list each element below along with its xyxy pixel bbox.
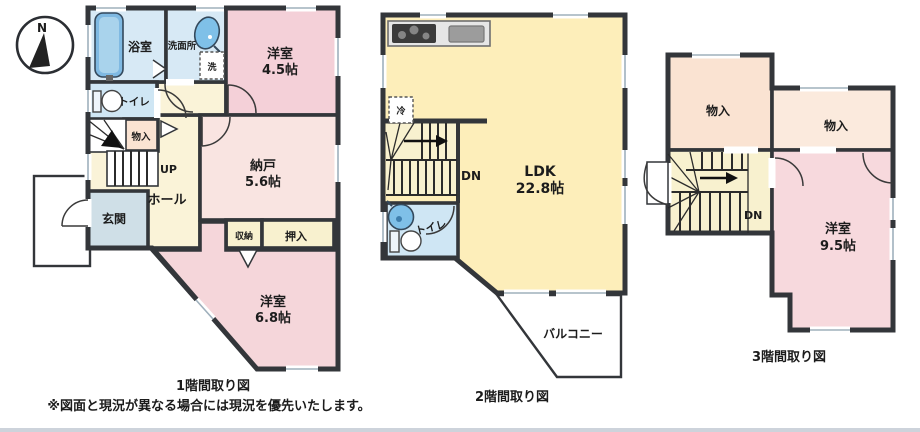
- room-washroom-label: 洗面所: [168, 40, 197, 52]
- stairs-down-3f-label: DN: [744, 209, 762, 222]
- room-storage-3f-a-label: 物入: [706, 103, 730, 118]
- room-storage-3f-b-label: 物入: [824, 118, 848, 133]
- kitchen-counter: [388, 21, 490, 46]
- room-storage-3f-a: [668, 55, 772, 150]
- floor2-caption: 2階間取り図: [475, 389, 549, 405]
- room-storeroom-size: 5.6帖: [245, 174, 281, 190]
- room-western-a-size: 4.5帖: [262, 62, 298, 78]
- bottom-edge-strip: [0, 428, 920, 432]
- floor2-plan: LDK 22.8帖 冷 DN トイレ バルコニー: [380, 12, 629, 378]
- floor3-caption: 3階間取り図: [752, 349, 826, 365]
- stairs-down-2f-label: DN: [461, 169, 481, 183]
- compass-icon: N: [17, 17, 73, 73]
- room-hall-label: ホール: [147, 193, 186, 208]
- floor-plan-canvas: N: [0, 0, 920, 432]
- toilet-icon-2f: [390, 231, 399, 252]
- room-western-3f-label: 洋室: [825, 221, 851, 237]
- room-balcony-label: バルコニー: [543, 327, 603, 341]
- room-ldk-label: LDK: [524, 164, 557, 180]
- room-storeroom-label: 納戸: [250, 158, 276, 174]
- room-western-3f-size: 9.5帖: [820, 238, 856, 254]
- floor3-plan: 物入 物入 DN 洋室 9.5帖: [644, 52, 896, 334]
- room-ldk-size: 22.8帖: [516, 180, 565, 197]
- stairs-up-label: UP: [160, 163, 177, 176]
- room-hall-corridor: [157, 82, 226, 115]
- room-western-b-size: 6.8帖: [255, 310, 291, 326]
- kitchen-sink-icon: [449, 26, 484, 42]
- fridge-label: 冷: [396, 105, 405, 117]
- room-western-a-label: 洋室: [267, 46, 293, 62]
- room-closet-a-label: 収納: [235, 230, 253, 242]
- floor-plan-svg: N: [0, 0, 920, 432]
- floor1-caption: 1階間取り図: [176, 378, 250, 394]
- floor1-plan: 浴室 洗面所 洗 洋室 4.5帖 トイレ 物入 UP 納戸 5.6帖 ホール 玄…: [34, 5, 342, 373]
- disclaimer-text: ※図面と現況が異なる場合には現況を優先いたします。: [47, 398, 370, 414]
- captions: 1階間取り図 ※図面と現況が異なる場合には現況を優先いたします。 2階間取り図 …: [47, 349, 826, 414]
- compass-north-label: N: [37, 21, 47, 35]
- room-toilet-1f-label: トイレ: [118, 96, 150, 108]
- room-western-b-label: 洋室: [260, 294, 286, 310]
- room-closet-b-label: 押入: [285, 229, 307, 243]
- room-storage-1f-label: 物入: [131, 131, 151, 143]
- washer-label: 洗: [207, 61, 216, 73]
- room-bathroom-label: 浴室: [128, 39, 152, 54]
- bathtub-icon: [95, 13, 123, 81]
- room-entrance-label: 玄関: [102, 211, 126, 226]
